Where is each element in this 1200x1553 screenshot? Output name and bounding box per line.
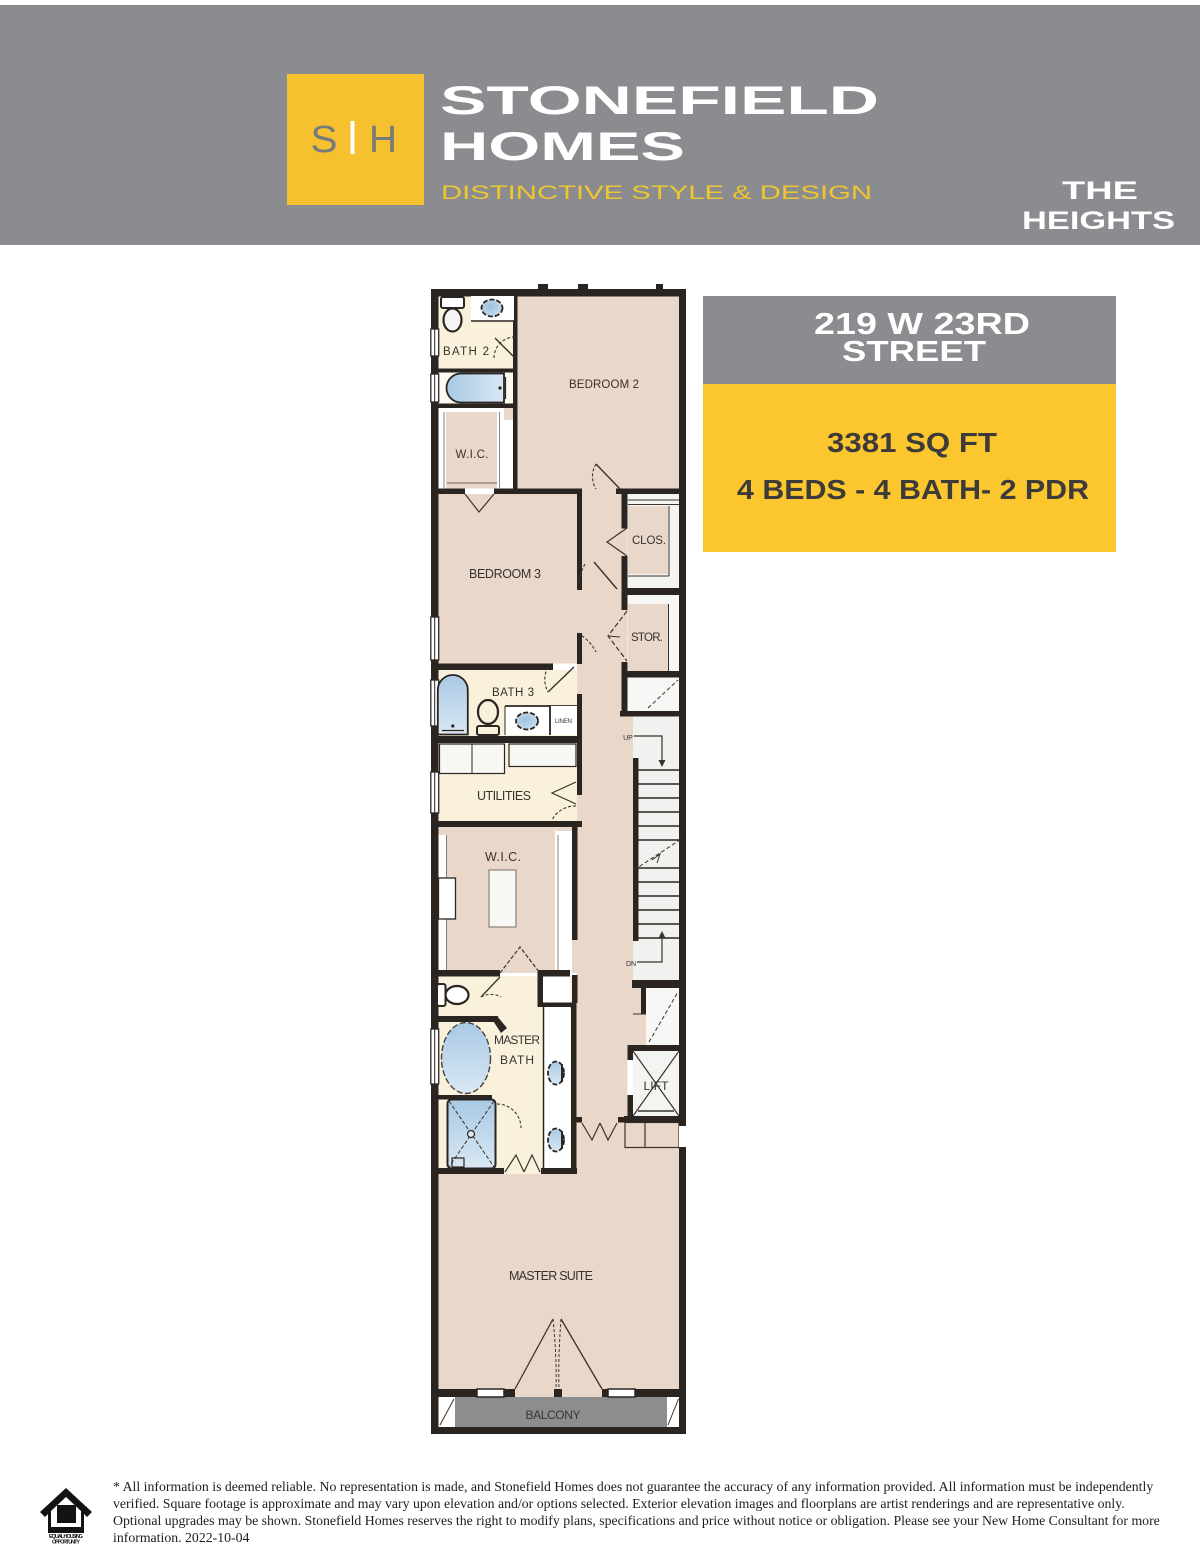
svg-text:BEDROOM 2: BEDROOM 2 [569, 379, 639, 391]
svg-text:DISTINCTIVE STYLE & DESIGN: DISTINCTIVE STYLE & DESIGN [441, 183, 872, 204]
svg-text:Optional upgrades may be shown: Optional upgrades may be shown. Stonefie… [113, 1513, 1160, 1528]
svg-text:MASTER: MASTER [494, 1033, 540, 1047]
svg-text:UTILITIES: UTILITIES [477, 789, 531, 803]
svg-text:BATH: BATH [500, 1053, 534, 1067]
svg-text:THE: THE [1062, 177, 1138, 205]
svg-text:OPPORTUNITY: OPPORTUNITY [52, 1540, 80, 1546]
svg-text:UP: UP [623, 735, 633, 742]
svg-text:BATH 2: BATH 2 [443, 346, 489, 358]
svg-text:BATH 3: BATH 3 [492, 687, 534, 699]
svg-text:STOR.: STOR. [631, 632, 663, 644]
svg-text:BALCONY: BALCONY [526, 1408, 581, 1422]
svg-text:DN: DN [626, 961, 636, 968]
svg-text:3381 SQ FT: 3381 SQ FT [827, 427, 997, 458]
svg-text:verified. Square footage is ap: verified. Square footage is approximate … [113, 1496, 1125, 1511]
svg-text:LIFT: LIFT [644, 1079, 670, 1093]
svg-text:STREET: STREET [842, 336, 986, 368]
svg-text:4 BEDS - 4 BATH- 2 PDR: 4 BEDS - 4 BATH- 2 PDR [737, 474, 1089, 505]
svg-text:information. 2022-10-04: information. 2022-10-04 [113, 1530, 250, 1545]
svg-text:HOMES: HOMES [440, 125, 685, 169]
svg-text:* All information is deemed re: * All information is deemed reliable. No… [113, 1479, 1153, 1494]
svg-text:S: S [311, 119, 338, 161]
svg-text:LINEN: LINEN [555, 719, 572, 725]
svg-text:CLOS.: CLOS. [632, 535, 666, 547]
svg-text:W.I.C.: W.I.C. [485, 850, 521, 864]
svg-text:HEIGHTS: HEIGHTS [1022, 207, 1175, 235]
svg-text:BEDROOM 3: BEDROOM 3 [469, 567, 541, 581]
svg-text:W.I.C.: W.I.C. [456, 449, 489, 461]
svg-text:H: H [369, 119, 397, 161]
svg-text:STONEFIELD: STONEFIELD [440, 79, 879, 123]
svg-text:MASTER SUITE: MASTER SUITE [509, 1269, 593, 1283]
